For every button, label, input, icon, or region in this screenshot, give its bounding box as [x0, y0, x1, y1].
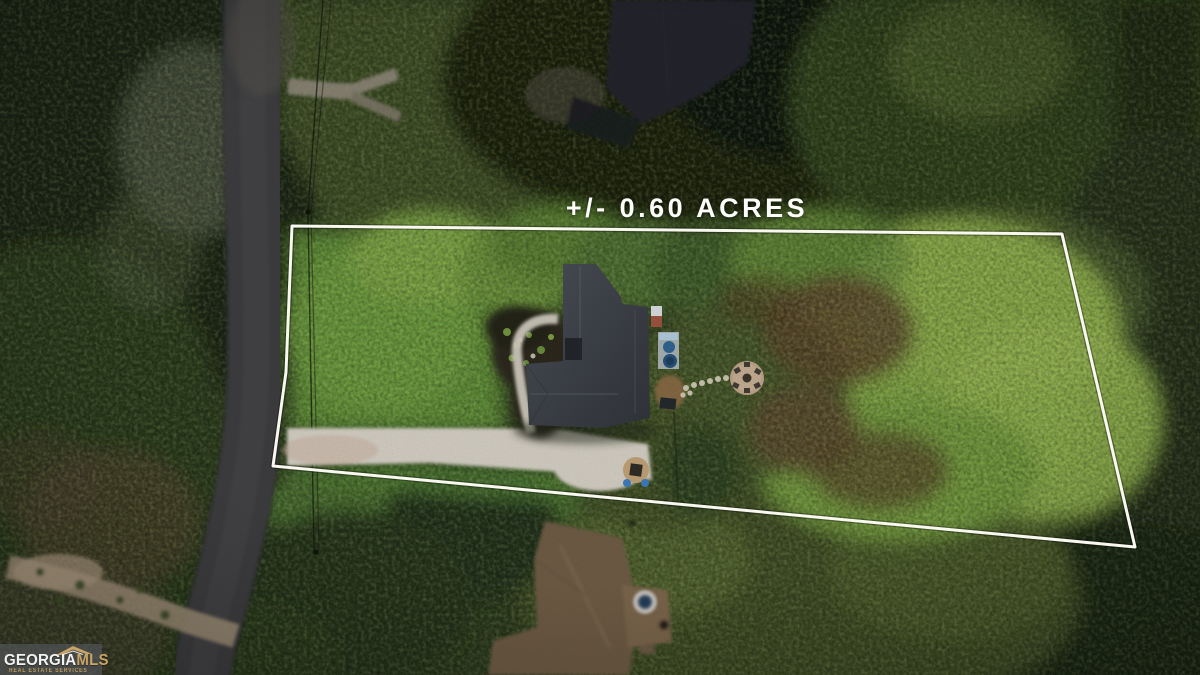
brand-watermark: GEORGIAMLS REAL ESTATE SERVICES	[0, 644, 102, 675]
brand-mls: MLS	[76, 652, 108, 669]
aerial-photo: +/- 0.60 ACRES GEORGIAMLS REAL ESTATE SE…	[0, 0, 1200, 675]
vignette	[0, 0, 1200, 675]
brand-georgia: GEORGIA	[4, 652, 76, 669]
brand-tagline: REAL ESTATE SERVICES	[9, 668, 88, 674]
acreage-label: +/- 0.60 ACRES	[566, 193, 808, 224]
